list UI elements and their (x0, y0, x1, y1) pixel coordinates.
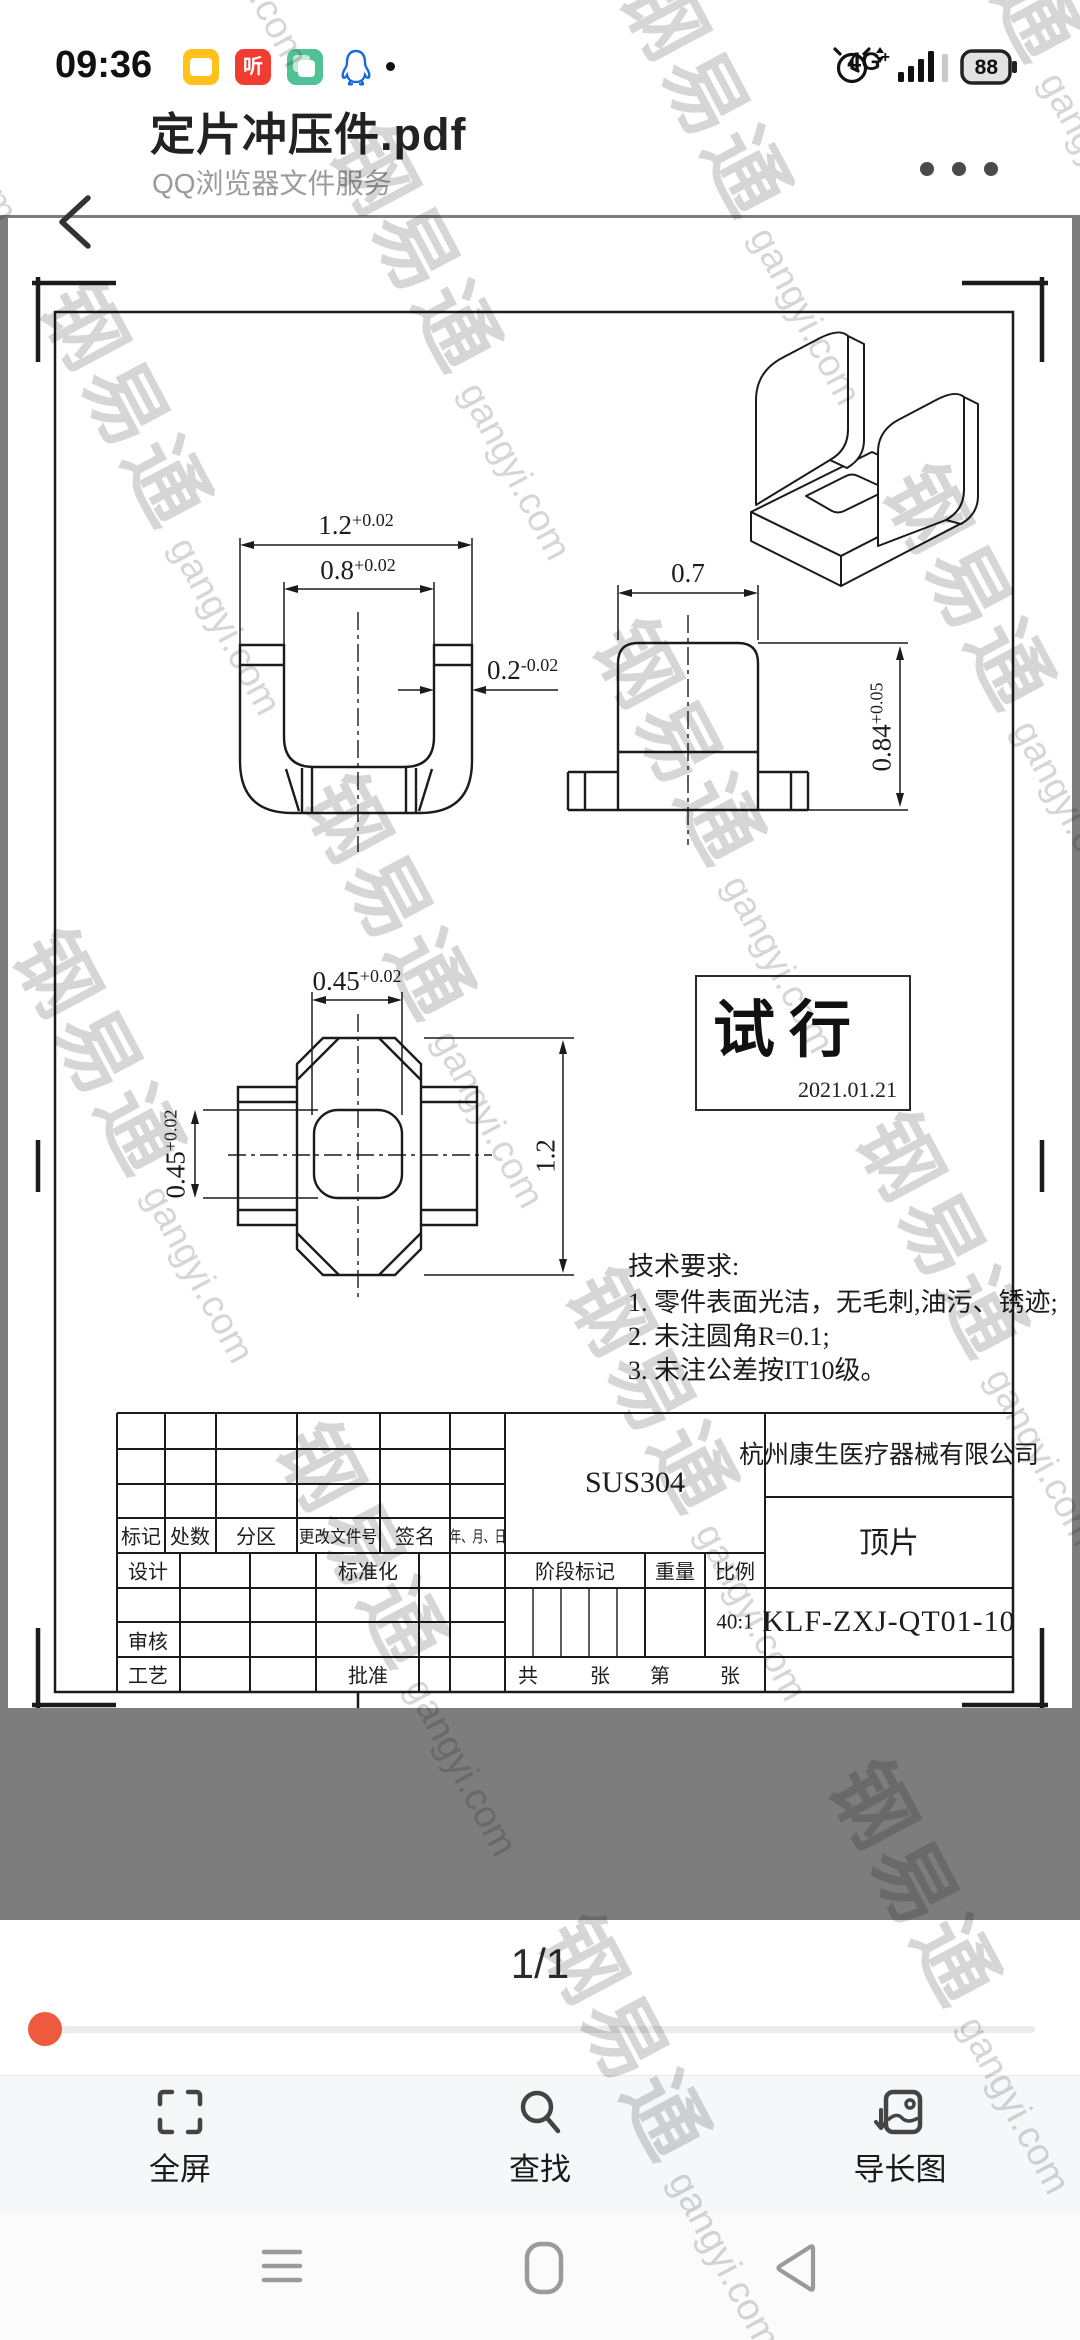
tb-scale-value: 40:1 (716, 1610, 753, 1635)
export-long-image-label: 导长图 (854, 2144, 947, 2189)
more-dot-icon (952, 162, 966, 176)
tb-drawing-no: KLF-ZXJ-QT01-10 (762, 1605, 1015, 1639)
export-long-image-icon (874, 2086, 926, 2138)
page-indicator: 1/1 (511, 1940, 569, 1988)
tb-part-name: 顶片 (859, 1518, 919, 1562)
export-long-image-button[interactable]: 导长图 (720, 2076, 1080, 2213)
dim-slot-height: 0.45+0.02 (161, 1110, 192, 1199)
tb-label-change-no: 更改文件号 (299, 1523, 377, 1548)
dim-side-width: 0.7 (671, 558, 705, 589)
status-bar: 09:36 听 (0, 0, 1080, 90)
pager-bar: 1/1 (0, 1920, 1080, 2075)
tb-label-date: 年、月、日 (450, 1523, 506, 1547)
page-slider-thumb[interactable] (28, 2012, 62, 2046)
trial-stamp: 试行 2021.01.21 (695, 975, 911, 1111)
tb-label-zone: 分区 (236, 1521, 276, 1550)
tb-label-standardization: 标准化 (338, 1556, 398, 1585)
tb-sheet-zhang2: 张 (720, 1660, 740, 1689)
trial-stamp-date: 2021.01.21 (798, 1077, 897, 1103)
back-button[interactable] (46, 190, 106, 260)
dim-length: 1.2 (531, 1139, 562, 1173)
signal-bars-icon (898, 51, 934, 82)
dim-wall-thickness: 0.2-0.02 (487, 655, 558, 686)
tb-label-signature: 签名 (395, 1521, 435, 1550)
file-title: 定片冲压件.pdf (150, 98, 466, 163)
dim-slot-width: 0.45+0.02 (313, 966, 402, 997)
back-nav-button[interactable] (772, 2240, 820, 2296)
fullscreen-icon (154, 2086, 206, 2138)
tb-label-scale: 比例 (715, 1556, 755, 1585)
tb-company: 杭州康生医疗器械有限公司 (739, 1435, 1039, 1471)
tech-requirement-1: 1. 零件表面光洁，无毛刺,油污、锈迹; (628, 1282, 1058, 1319)
find-button[interactable]: 查找 (360, 2076, 720, 2213)
tb-sheet-no: 第 (650, 1660, 670, 1689)
dim-height: 0.84+0.05 (867, 683, 898, 772)
back-chevron-icon (46, 190, 106, 260)
tb-label-review: 审核 (128, 1626, 168, 1655)
sim2-bar-icon (942, 54, 948, 82)
search-icon (514, 2086, 566, 2138)
fullscreen-button[interactable]: 全屏 (0, 2076, 360, 2213)
tech-requirements-title: 技术要求: (628, 1246, 739, 1283)
more-dot-icon (920, 162, 934, 176)
home-button[interactable] (520, 2240, 568, 2296)
tb-material: SUS304 (585, 1466, 685, 1500)
tb-sheet-zhang1: 张 (590, 1660, 610, 1689)
more-menu-button[interactable] (920, 150, 1030, 190)
trial-stamp-text: 试行 (713, 979, 865, 1069)
network-type-text: 4G+ (847, 48, 890, 77)
file-source-subtitle: QQ浏览器文件服务 (152, 162, 392, 202)
file-viewer-header: 定片冲压件.pdf QQ浏览器文件服务 (0, 90, 1080, 215)
dim-width-inner: 0.8+0.02 (320, 555, 395, 586)
tb-label-process: 工艺 (128, 1660, 168, 1689)
screen: 1.2+0.02 0.8+0.02 0.2-0.02 0.7 0.84+0.05… (0, 0, 1080, 2340)
tb-label-mark: 标记 (121, 1521, 161, 1550)
android-navbar (0, 2212, 1080, 2340)
tb-sheet-total: 共 (518, 1660, 538, 1689)
tb-label-stage-mark: 阶段标记 (535, 1556, 615, 1585)
tech-requirement-3: 3. 未注公差按IT10级。 (628, 1350, 887, 1387)
tb-label-weight: 重量 (655, 1556, 695, 1585)
more-dot-icon (984, 162, 998, 176)
find-label: 查找 (509, 2144, 571, 2189)
tb-label-design: 设计 (128, 1556, 168, 1585)
bottom-toolbar: 全屏 查找 导长图 (0, 2075, 1080, 2213)
battery-percent-text: 88 (975, 56, 998, 80)
menu-button[interactable] (258, 2240, 306, 2296)
page-slider-track[interactable] (45, 2026, 1035, 2033)
tech-requirement-2: 2. 未注圆角R=0.1; (628, 1316, 830, 1353)
tb-label-approve: 批准 (348, 1660, 388, 1689)
dim-width-outer: 1.2+0.02 (318, 510, 393, 541)
fullscreen-label: 全屏 (149, 2144, 211, 2189)
tb-label-count: 处数 (170, 1521, 210, 1550)
